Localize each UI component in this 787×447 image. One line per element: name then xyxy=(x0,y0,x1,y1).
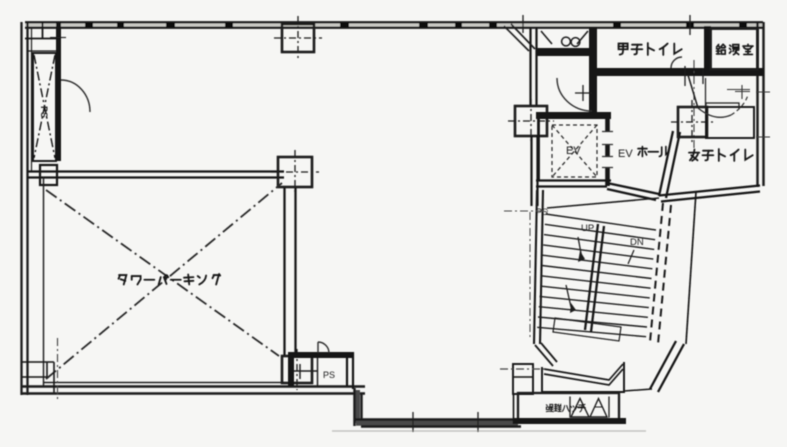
svg-text:EV: EV xyxy=(566,145,581,157)
svg-text:PS: PS xyxy=(39,106,49,118)
svg-text:PS: PS xyxy=(323,370,335,380)
svg-text:EV: EV xyxy=(618,148,633,160)
svg-text:PS: PS xyxy=(536,207,548,217)
svg-text:DN: DN xyxy=(630,237,644,248)
svg-text:UP: UP xyxy=(581,223,594,234)
